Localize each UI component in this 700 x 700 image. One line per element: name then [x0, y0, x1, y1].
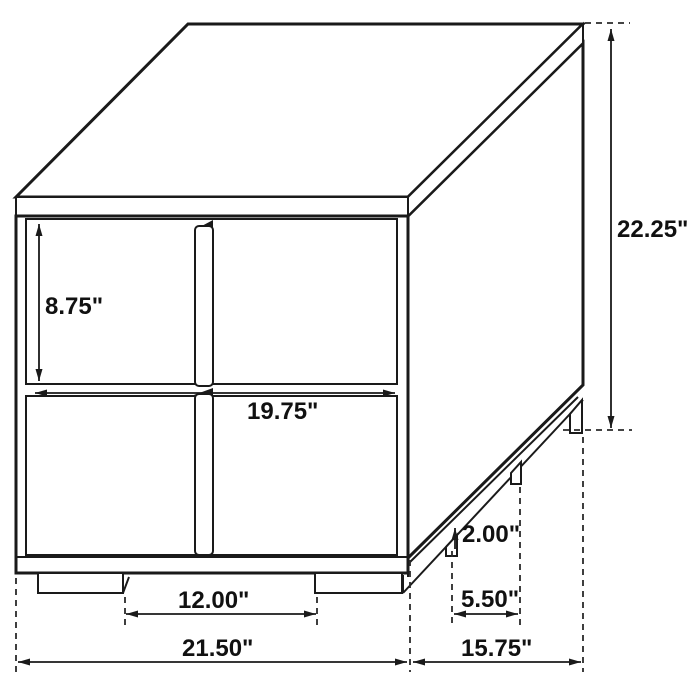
- drawer-pull-lower: [195, 394, 213, 555]
- dim-front-leg-gap: 12.00": [125, 587, 317, 626]
- dim-drawer-height-label: 8.75": [45, 293, 103, 320]
- side-foot-back: [570, 400, 582, 433]
- dim-drawer-width-label: 19.75": [247, 398, 318, 425]
- dim-side-leg-gap-label: 5.50": [461, 586, 519, 613]
- dim-front-leg-gap-label: 12.00": [178, 587, 249, 614]
- front-leg-right: [315, 573, 402, 593]
- nightstand-dimension-diagram: 8.75" 19.75" 22.25" 12.00" 2.00": [0, 0, 700, 700]
- dimension-diagram-canvas: 8.75" 19.75" 22.25" 12.00" 2.00": [0, 0, 700, 700]
- top-board-front-band: [16, 197, 408, 216]
- dim-overall-width-label: 21.50": [182, 635, 253, 662]
- dim-leg-height: 2.00": [455, 521, 520, 549]
- drawer-pull-upper: [195, 226, 213, 386]
- side-foot-middle: [511, 462, 521, 484]
- dim-leg-height-label: 2.00": [462, 521, 520, 548]
- dim-side-leg-gap: 5.50": [452, 487, 520, 626]
- dim-overall-height-label: 22.25": [617, 216, 688, 243]
- front-leg-left: [38, 573, 123, 593]
- dim-overall-depth-label: 15.75": [461, 635, 532, 662]
